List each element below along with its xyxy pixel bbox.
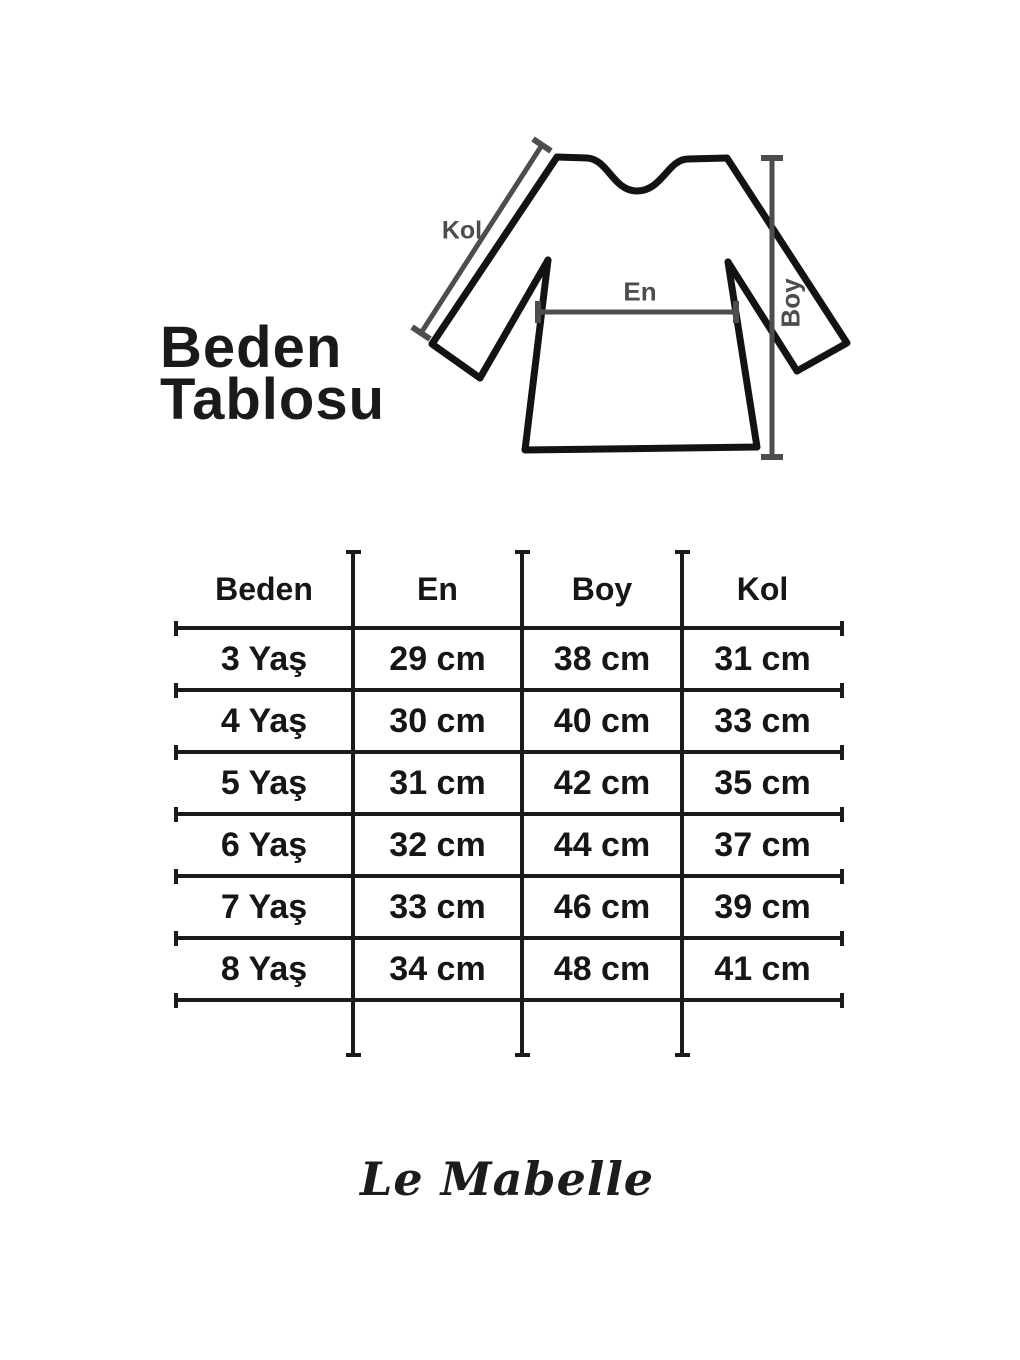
cell-boy: 40 cm (522, 690, 682, 752)
cell-en: 32 cm (353, 814, 522, 876)
cell-kol: 37 cm (682, 814, 843, 876)
cell-en: 31 cm (353, 752, 522, 814)
cell-kol: 33 cm (682, 690, 843, 752)
cell-kol: 35 cm (682, 752, 843, 814)
cell-en: 29 cm (353, 628, 522, 690)
cell-beden: 5 Yaş (175, 752, 353, 814)
cell-kol: 41 cm (682, 938, 843, 1000)
cell-boy: 46 cm (522, 876, 682, 938)
cell-en: 30 cm (353, 690, 522, 752)
table-row: 3 Yaş 29 cm 38 cm 31 cm (175, 628, 843, 690)
cell-beden: 7 Yaş (175, 876, 353, 938)
en-label: En (623, 277, 656, 308)
cell-beden: 8 Yaş (175, 938, 353, 1000)
table-row: 7 Yaş 33 cm 46 cm 39 cm (175, 876, 843, 938)
size-table: Beden En Boy Kol 3 Yaş 29 cm 38 cm 31 cm… (175, 550, 843, 1057)
table-row: 8 Yaş 34 cm 48 cm 41 cm (175, 938, 843, 1000)
cell-beden: 4 Yaş (175, 690, 353, 752)
cell-boy: 44 cm (522, 814, 682, 876)
brand-logo: Le Mabelle (360, 1152, 654, 1206)
table-row: 6 Yaş 32 cm 44 cm 37 cm (175, 814, 843, 876)
header-en: En (353, 550, 522, 628)
boy-label: Boy (776, 278, 807, 327)
cell-en: 33 cm (353, 876, 522, 938)
table-header-row: Beden En Boy Kol (175, 550, 843, 628)
cell-kol: 39 cm (682, 876, 843, 938)
cell-boy: 38 cm (522, 628, 682, 690)
header-boy: Boy (522, 550, 682, 628)
cell-kol: 31 cm (682, 628, 843, 690)
measurement-lines (412, 139, 783, 457)
cell-beden: 3 Yaş (175, 628, 353, 690)
table-row: 5 Yaş 31 cm 42 cm 35 cm (175, 752, 843, 814)
cell-boy: 42 cm (522, 752, 682, 814)
kol-label: Kol (442, 217, 482, 246)
table-row: 4 Yaş 30 cm 40 cm 33 cm (175, 690, 843, 752)
header-kol: Kol (682, 550, 843, 628)
cell-boy: 48 cm (522, 938, 682, 1000)
cell-en: 34 cm (353, 938, 522, 1000)
header-beden: Beden (175, 550, 353, 628)
cell-beden: 6 Yaş (175, 814, 353, 876)
